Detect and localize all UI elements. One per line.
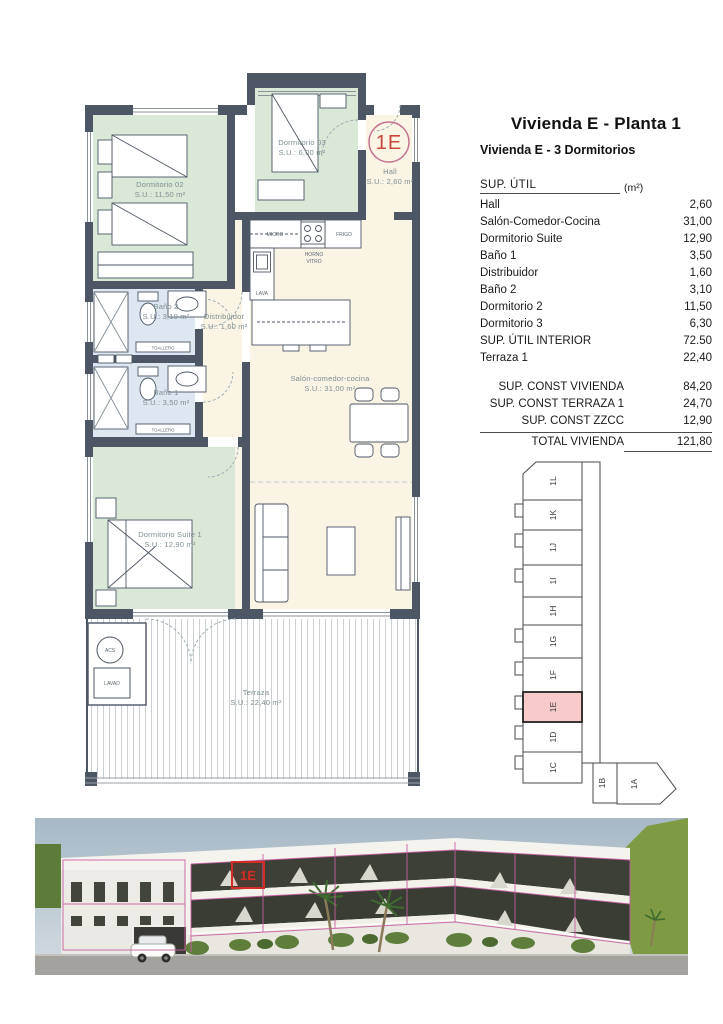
unit-label: 1G xyxy=(548,636,558,647)
acs-label: ACS xyxy=(105,648,116,654)
unit-label: 1F xyxy=(548,670,558,680)
horno-label: HORNO xyxy=(305,252,324,258)
micro-label: MICRO xyxy=(267,232,284,238)
dining-table-icon xyxy=(350,404,408,442)
key-plan-drawing: 1L 1K 1J 1I 1H 1G 1F 1E 1D 1C 1B 1A xyxy=(512,452,692,812)
unit-label: 1H xyxy=(548,606,558,617)
area-table: SUP. ÚTIL (m²) Hall 2,60 Salón-Comedor-C… xyxy=(480,179,712,452)
coffee-table-icon xyxy=(327,527,355,575)
table-row: Dormitorio 2 11,50 xyxy=(480,299,712,316)
summary-row: SUP. CONST TERRAZA 1 24,70 xyxy=(480,396,712,413)
room-label-terraza: Terraza S.U.: 22,40 m² xyxy=(230,688,281,708)
table-row: Terraza 1 22,40 xyxy=(480,350,712,367)
toallero-label: TOALLERO xyxy=(152,346,176,351)
unit-cell-1a xyxy=(617,763,676,804)
frigo-label: FRIGO xyxy=(336,232,352,238)
unit-label: 1D xyxy=(548,732,558,743)
table-row: Hall 2,60 xyxy=(480,197,712,214)
washbasin-icon xyxy=(176,372,198,386)
render-scene: 1E xyxy=(35,818,688,975)
room-label-distribuidor: Distribuidor S.U.: 1,60 m² xyxy=(201,312,248,332)
page-title: Vivienda E - Planta 1 xyxy=(480,114,712,134)
area-table-header: SUP. ÚTIL (m²) xyxy=(480,179,712,194)
table-row: Dormitorio Suite 12,90 xyxy=(480,231,712,248)
room-label-bano-1: Baño 1 S.U.: 3,50 m² xyxy=(143,388,190,408)
vitro-label: VITRO xyxy=(306,259,321,265)
unit-badge-label: 1E xyxy=(376,132,402,154)
unit-label-highlighted: 1E xyxy=(548,701,558,712)
toallero-label: TOALLERO xyxy=(152,428,176,433)
kitchen-island xyxy=(252,300,350,345)
unit-label: 1J xyxy=(548,543,558,552)
building-key-plan: 1L 1K 1J 1I 1H 1G 1F 1E 1D 1C 1B 1A xyxy=(512,452,692,812)
room-label-dormitorio-02: Dormitorio 02 S.U.: 11,50 m² xyxy=(135,180,186,200)
table-row: Salón-Comedor-Cocina 31,00 xyxy=(480,214,712,231)
info-panel: Vivienda E - Planta 1 Vivienda E - 3 Dor… xyxy=(480,114,712,452)
unit-label: 1A xyxy=(629,778,639,789)
sofa-icon xyxy=(255,504,288,602)
corridor xyxy=(582,462,600,763)
table-row: Dormitorio 3 6,30 xyxy=(480,316,712,333)
unit-label: 1I xyxy=(548,577,558,584)
key-plan-units xyxy=(515,462,676,804)
unit-label: 1C xyxy=(548,762,558,773)
road xyxy=(35,956,688,975)
table-row: Baño 2 3,10 xyxy=(480,282,712,299)
tv-unit-icon xyxy=(396,517,410,590)
room-label-salon: Salón-comedor-cocina S.U.: 31,00 m² xyxy=(290,374,369,394)
hill-left xyxy=(35,844,61,908)
room-label-dormitorio-03: Dormitorio 03 S.U.: 6,00 m² xyxy=(278,138,326,158)
floor-plan: 1E MICRO FRIGO HORNO VITRO LAVA TOALLERO… xyxy=(78,52,423,800)
building-render-photo: 1E xyxy=(35,818,688,975)
summary-row: SUP. CONST VIVIENDA 84,20 xyxy=(480,379,712,396)
header-label: SUP. ÚTIL xyxy=(480,179,620,194)
table-row: Distribuidor 1,60 xyxy=(480,265,712,282)
table-row: SUP. ÚTIL INTERIOR 72.50 xyxy=(480,333,712,350)
brochure-page: 1E MICRO FRIGO HORNO VITRO LAVA TOALLERO… xyxy=(0,0,723,1024)
summary-total-row: TOTAL VIVIENDA 121,80 xyxy=(480,432,712,452)
page-subtitle: Vivienda E - 3 Dormitorios xyxy=(480,143,712,157)
table-row: Baño 1 3,50 xyxy=(480,248,712,265)
unit-label: 1K xyxy=(548,509,558,520)
summary-row: SUP. CONST ZZCC 12,90 xyxy=(480,413,712,430)
room-label-hall: Hall S.U.: 2,60 m² xyxy=(367,167,414,187)
unit-highlight-label: 1E xyxy=(240,868,256,883)
lava-label: LAVA xyxy=(256,291,269,297)
room-label-suite: Dormitorio Suite 1 S.U.: 12,90 m² xyxy=(138,530,202,550)
room-label-bano-2: Baño 2 S.U.: 3,10 m² xyxy=(143,302,190,322)
unit-label: 1B xyxy=(597,777,607,788)
summary-block: SUP. CONST VIVIENDA 84,20 SUP. CONST TER… xyxy=(480,379,712,452)
cooktop-icon xyxy=(301,222,325,244)
header-unit: (m²) xyxy=(620,182,712,194)
lavad-label: LAVAD xyxy=(104,681,120,687)
unit-label: 1L xyxy=(548,476,558,486)
